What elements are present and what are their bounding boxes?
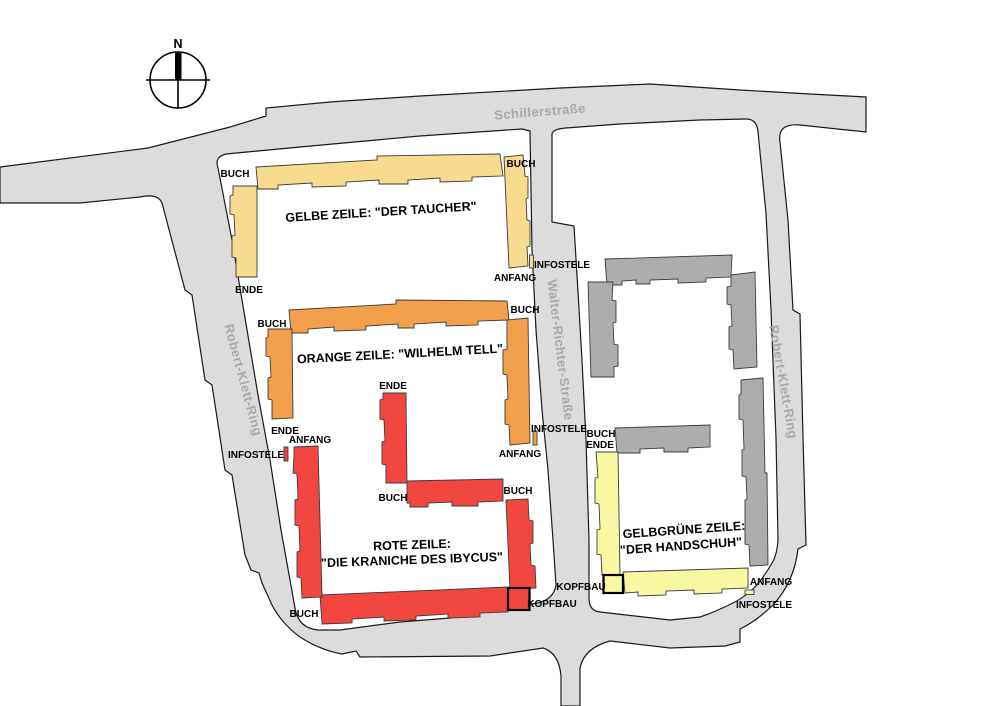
gray-left-wing: [588, 282, 618, 377]
red-row-inner-horizontal-wing: [407, 479, 503, 507]
yellow-infostele-marker: [530, 255, 534, 268]
red-kopfbau-label: KOPFBAU: [527, 599, 576, 610]
gray-right-lower-wing: [739, 378, 768, 566]
gray-right-upper-wing: [727, 272, 757, 369]
red-infostele-label: INFOSTELE: [228, 450, 284, 461]
yellowgreen-infostele-marker: [745, 590, 754, 595]
yellow-ende-label: ENDE: [235, 285, 263, 296]
yellowgreen-row-bottom-wing: [623, 568, 748, 596]
red-row-buildings: [284, 393, 536, 624]
orange-row-right-wing: [503, 318, 530, 445]
yellowgreen-anfang-label: ANFANG: [750, 577, 792, 588]
red-anfang-label: ANFANG: [289, 435, 331, 446]
yellow-infostele-label: INFOSTELE: [534, 260, 590, 271]
yellowgreen-row-left-wing: [595, 452, 620, 575]
red-ende-label: ENDE: [379, 381, 407, 392]
gray-top-wing: [605, 255, 732, 285]
orange-buch-top-left-label: BUCH: [258, 319, 287, 330]
yellowgreen-kopfbau-building: [604, 575, 624, 593]
red-buch-middle-label: BUCH: [379, 493, 408, 504]
red-row-title-line1: ROTE ZEILE:: [373, 537, 451, 554]
red-row-left-wing: [293, 446, 322, 598]
red-row-title-line2: "DIE KRANICHE DES IBYCUS": [321, 550, 503, 570]
site-plan-map: N Schillerstraße Walter-Richter-Straße R…: [0, 0, 1000, 706]
red-row-right-wing: [506, 499, 536, 590]
yellow-row-title: GELBE ZEILE: "DER TAUCHER": [285, 199, 477, 225]
red-row-inner-vertical-wing: [380, 393, 407, 483]
yellow-row-right-wing: [504, 155, 530, 268]
compass-north-label: N: [173, 37, 182, 51]
yellow-buch-top-left-label: BUCH: [221, 169, 250, 180]
orange-row-left-wing: [266, 329, 293, 419]
red-buch-right-label: BUCH: [504, 486, 533, 497]
orange-row-title: ORANGE ZEILE: "WILHELM TELL": [297, 342, 504, 367]
orange-row-top-wing: [289, 300, 509, 333]
red-kopfbau-building: [508, 588, 530, 610]
orange-buch-top-right-label: BUCH: [511, 305, 540, 316]
compass-rose-icon: N: [146, 37, 210, 108]
red-buch-bottom-label: BUCH: [290, 609, 319, 620]
yellowgreen-infostele-label: INFOSTELE: [736, 600, 792, 611]
yellow-buch-top-right-label: BUCH: [507, 159, 536, 170]
orange-anfang-label: ANFANG: [499, 449, 541, 460]
orange-infostele-label: INFOSTELE: [531, 424, 587, 435]
map-canvas: N Schillerstraße Walter-Richter-Straße R…: [0, 0, 1000, 706]
yellow-anfang-label: ANFANG: [494, 273, 536, 284]
gray-buch-label: BUCH: [587, 429, 616, 440]
yellowgreen-kopfbau-label: KOPFBAU: [556, 582, 605, 593]
gray-ende-label: ENDE: [586, 440, 614, 451]
yellow-row-top-wing: [256, 154, 503, 189]
red-infostele-marker: [284, 447, 288, 461]
gray-middle-wing: [615, 425, 710, 453]
